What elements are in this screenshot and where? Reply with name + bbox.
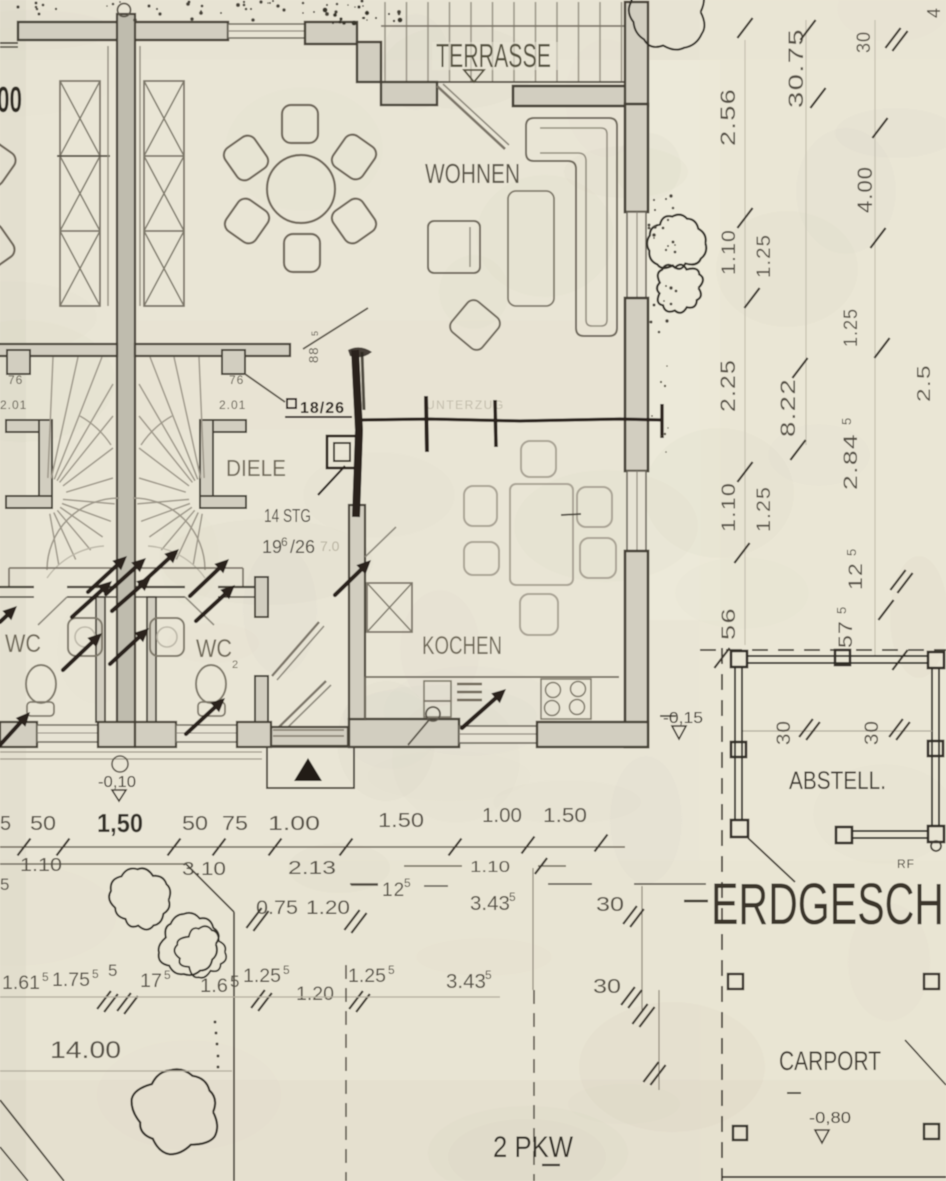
svg-text:/26: /26 bbox=[290, 537, 315, 557]
svg-text:1.6: 1.6 bbox=[200, 976, 228, 997]
svg-text:WC: WC bbox=[196, 635, 232, 663]
svg-text:1.61: 1.61 bbox=[2, 973, 40, 994]
svg-text:5: 5 bbox=[834, 606, 849, 614]
svg-text:1.25: 1.25 bbox=[754, 234, 775, 278]
svg-text:30: 30 bbox=[862, 720, 883, 745]
svg-text:50: 50 bbox=[182, 813, 208, 835]
svg-text:00: 00 bbox=[0, 79, 22, 120]
svg-text:1,50: 1,50 bbox=[97, 808, 143, 838]
svg-text:5: 5 bbox=[388, 963, 396, 977]
svg-text:30: 30 bbox=[854, 31, 875, 53]
svg-text:1.25: 1.25 bbox=[841, 308, 862, 347]
svg-text:1.25: 1.25 bbox=[348, 966, 386, 987]
svg-text:5: 5 bbox=[404, 876, 412, 890]
svg-text:ERDGESCH: ERDGESCH bbox=[711, 872, 944, 937]
svg-text:1.25: 1.25 bbox=[754, 486, 775, 532]
svg-text:1.10: 1.10 bbox=[20, 855, 62, 875]
svg-text:56: 56 bbox=[719, 607, 740, 640]
svg-text:5: 5 bbox=[844, 548, 859, 556]
svg-text:57: 57 bbox=[836, 620, 857, 648]
svg-text:KOCHEN: KOCHEN bbox=[422, 632, 502, 660]
svg-text:2.56: 2.56 bbox=[717, 88, 740, 146]
svg-text:WOHNEN: WOHNEN bbox=[425, 158, 520, 189]
svg-text:2.84: 2.84 bbox=[841, 433, 862, 490]
svg-text:5: 5 bbox=[42, 970, 50, 984]
svg-text:6: 6 bbox=[281, 535, 288, 549]
svg-text:50: 50 bbox=[30, 813, 56, 835]
svg-text:75: 75 bbox=[222, 813, 248, 835]
svg-text:TERRASSE: TERRASSE bbox=[436, 37, 551, 74]
svg-text:17: 17 bbox=[140, 971, 162, 992]
svg-text:30: 30 bbox=[593, 976, 621, 998]
svg-text:-0,80: -0,80 bbox=[809, 1110, 851, 1127]
svg-text:19: 19 bbox=[262, 537, 282, 557]
svg-text:-0,10: -0,10 bbox=[98, 774, 136, 791]
svg-text:5: 5 bbox=[283, 963, 291, 977]
svg-text:2.01: 2.01 bbox=[0, 398, 27, 412]
svg-text:76: 76 bbox=[8, 373, 23, 387]
svg-text:12: 12 bbox=[846, 562, 867, 590]
svg-text:5: 5 bbox=[92, 967, 100, 981]
svg-text:8.22: 8.22 bbox=[777, 378, 800, 437]
svg-text:3.43: 3.43 bbox=[470, 893, 510, 915]
svg-text:5: 5 bbox=[310, 331, 320, 336]
svg-text:5: 5 bbox=[0, 875, 10, 894]
svg-text:5: 5 bbox=[108, 961, 118, 980]
svg-text:CARPORT: CARPORT bbox=[779, 1046, 881, 1076]
svg-text:14.00: 14.00 bbox=[50, 1037, 121, 1064]
svg-text:1.10: 1.10 bbox=[470, 859, 510, 876]
svg-text:4.00: 4.00 bbox=[854, 166, 877, 213]
svg-text:2: 2 bbox=[232, 659, 238, 671]
svg-text:1.50: 1.50 bbox=[378, 810, 424, 832]
svg-text:1.00: 1.00 bbox=[268, 813, 320, 835]
svg-text:12: 12 bbox=[382, 880, 405, 901]
svg-text:UNTERZUG: UNTERZUG bbox=[426, 398, 505, 412]
svg-text:5: 5 bbox=[509, 890, 517, 904]
svg-text:2.25: 2.25 bbox=[717, 359, 740, 412]
svg-text:30: 30 bbox=[774, 720, 795, 745]
svg-text:2 PKW: 2 PKW bbox=[493, 1131, 574, 1164]
svg-text:1.00: 1.00 bbox=[482, 805, 522, 827]
svg-text:2.13: 2.13 bbox=[288, 858, 336, 878]
svg-text:DIELE: DIELE bbox=[226, 455, 286, 481]
svg-text:ABSTELL.: ABSTELL. bbox=[789, 767, 886, 795]
svg-text:14 STG: 14 STG bbox=[264, 506, 311, 526]
svg-text:4: 4 bbox=[924, 7, 944, 18]
svg-text:30: 30 bbox=[596, 894, 624, 916]
svg-text:5: 5 bbox=[839, 417, 854, 425]
svg-text:0.75: 0.75 bbox=[256, 898, 298, 919]
svg-text:30.75: 30.75 bbox=[785, 28, 808, 108]
svg-text:88: 88 bbox=[306, 347, 321, 363]
svg-text:76: 76 bbox=[229, 373, 244, 387]
svg-text:1.75: 1.75 bbox=[52, 970, 90, 991]
svg-text:1.20: 1.20 bbox=[296, 984, 334, 1005]
svg-text:3.43: 3.43 bbox=[446, 971, 486, 993]
svg-text:7.0: 7.0 bbox=[320, 538, 340, 554]
svg-text:1.25: 1.25 bbox=[243, 966, 281, 987]
svg-text:RF: RF bbox=[897, 857, 915, 871]
svg-text:3.10: 3.10 bbox=[182, 859, 226, 879]
svg-text:2.5: 2.5 bbox=[914, 364, 934, 402]
svg-text:1.10: 1.10 bbox=[719, 229, 740, 275]
svg-text:5: 5 bbox=[485, 968, 493, 982]
svg-text:1.10: 1.10 bbox=[719, 482, 740, 532]
svg-text:1.20: 1.20 bbox=[306, 898, 350, 919]
svg-text:5: 5 bbox=[230, 972, 240, 991]
svg-text:-0,15: -0,15 bbox=[663, 710, 703, 727]
svg-text:2.01: 2.01 bbox=[219, 398, 246, 412]
svg-text:5: 5 bbox=[164, 968, 172, 982]
svg-text:1.50: 1.50 bbox=[543, 805, 587, 827]
svg-text:5: 5 bbox=[0, 813, 12, 835]
svg-text:WC: WC bbox=[5, 630, 41, 658]
svg-text:18/26: 18/26 bbox=[300, 400, 345, 417]
